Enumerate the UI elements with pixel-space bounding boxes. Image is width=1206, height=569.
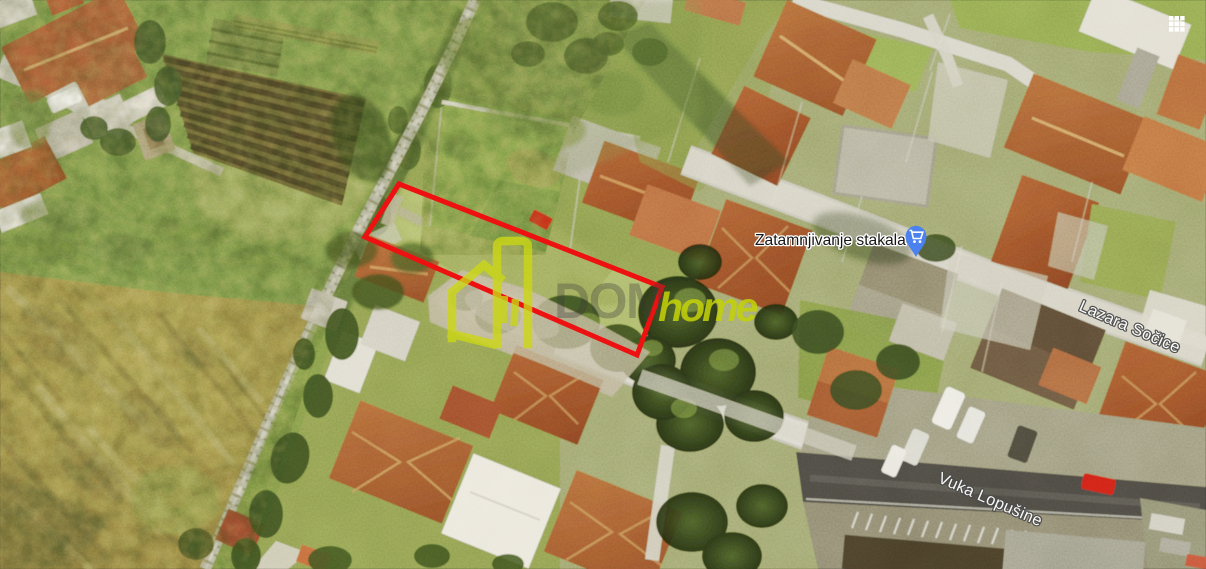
- svg-text:home: home: [658, 284, 758, 330]
- svg-text:Zatamnjivanje stakala: Zatamnjivanje stakala: [755, 232, 906, 249]
- svg-text:DOM: DOM: [554, 273, 666, 329]
